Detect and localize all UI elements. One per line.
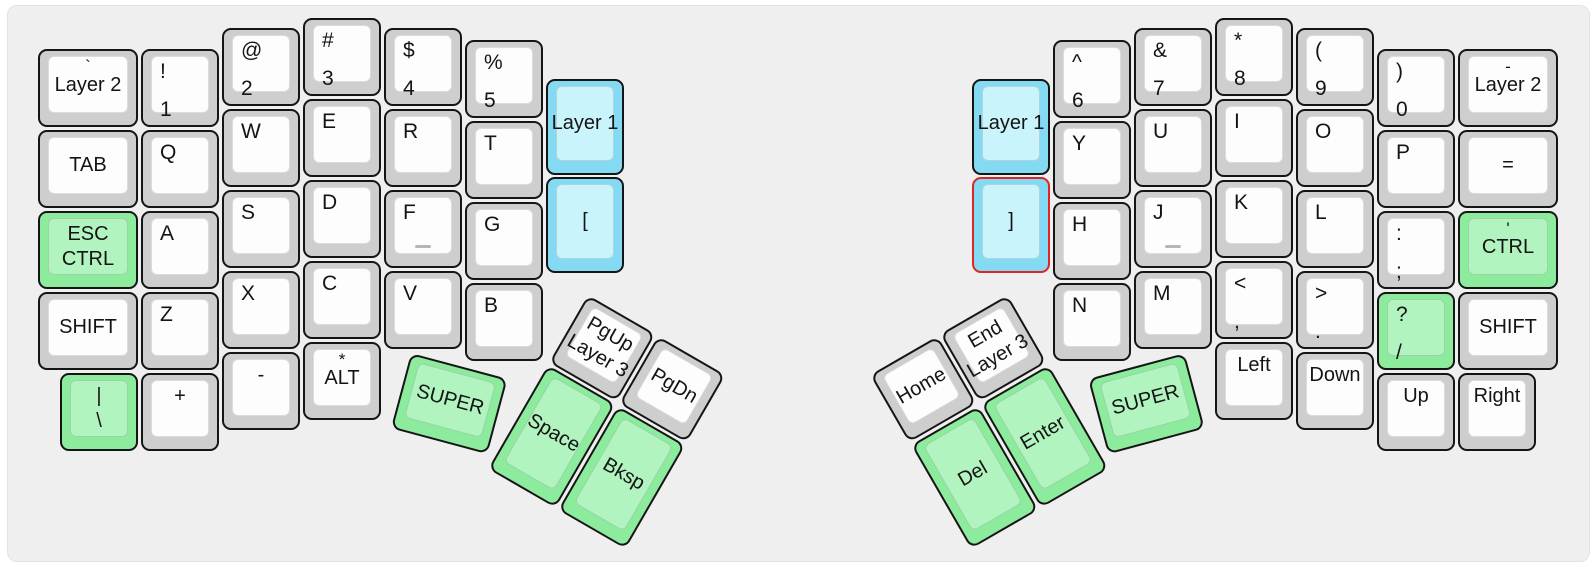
key-minus[interactable]: - bbox=[222, 352, 300, 430]
keycap-top: SUPER bbox=[1099, 362, 1191, 438]
keycap-top: Layer 1 bbox=[556, 86, 614, 161]
key-s[interactable]: S bbox=[222, 190, 300, 268]
key-labels: ESCCTRL bbox=[50, 219, 126, 274]
key-labels: )0 bbox=[1389, 57, 1443, 112]
keycap-top: G bbox=[475, 209, 533, 266]
keycap-top: @2 bbox=[232, 35, 290, 92]
key-label-line: SUPER bbox=[1109, 379, 1182, 421]
key-label-line: Home bbox=[892, 362, 951, 410]
key-label-line: * bbox=[1234, 29, 1281, 53]
key-labels: P bbox=[1389, 138, 1443, 193]
key-label-line: > bbox=[1315, 282, 1362, 306]
key-labels: *8 bbox=[1227, 26, 1281, 81]
key-labels: + bbox=[153, 381, 207, 436]
key-labels: #3 bbox=[315, 26, 369, 81]
key-m[interactable]: M bbox=[1134, 271, 1212, 349]
key-labels: A bbox=[153, 219, 207, 274]
keycap-top: S bbox=[232, 197, 290, 254]
key-label-line: T bbox=[484, 132, 531, 156]
key-labels: Home bbox=[884, 349, 958, 424]
key-at-2[interactable]: @2 bbox=[222, 28, 300, 106]
key-labels: Z bbox=[153, 300, 207, 355]
key-labels: G bbox=[477, 210, 531, 265]
keycap-top: W bbox=[232, 116, 290, 173]
key-rparen-0[interactable]: )0 bbox=[1377, 49, 1455, 127]
key-label-line: 4 bbox=[403, 77, 450, 101]
keycap-top: |\ bbox=[70, 380, 128, 437]
keycap-top: L bbox=[1306, 197, 1364, 254]
key-labels: EndLayer 3 bbox=[954, 308, 1028, 383]
key-label-line: Z bbox=[160, 303, 207, 327]
key-labels: Right bbox=[1470, 381, 1524, 436]
keycap-top: Down bbox=[1306, 359, 1364, 416]
key-label-line: ESC bbox=[67, 222, 108, 247]
key-label-line: B bbox=[484, 294, 531, 318]
key-labels: M bbox=[1146, 279, 1200, 334]
key-label-line: O bbox=[1315, 120, 1362, 144]
key-labels: = bbox=[1470, 138, 1546, 193]
key-l[interactable]: L bbox=[1296, 190, 1374, 268]
keycap-top: F bbox=[394, 197, 452, 254]
key-labels: *ALT bbox=[315, 350, 369, 405]
keycap-top: Left bbox=[1225, 349, 1283, 406]
keycap-top: I bbox=[1225, 106, 1283, 163]
key-labels: %5 bbox=[477, 48, 531, 103]
key-exclam-1[interactable]: !1 bbox=[141, 49, 219, 127]
keycap-top: Up bbox=[1387, 380, 1445, 437]
key-label-line: [ bbox=[582, 209, 588, 234]
key-w[interactable]: W bbox=[222, 109, 300, 187]
key-label-line: , bbox=[1234, 310, 1281, 334]
key-labels: Q bbox=[153, 138, 207, 193]
key-label-line: . bbox=[1315, 320, 1362, 344]
key-label-line: X bbox=[241, 282, 288, 306]
keycap-top: A bbox=[151, 218, 209, 275]
key-labels: Layer 1 bbox=[558, 87, 612, 160]
key-arrow-right[interactable]: Right bbox=[1458, 373, 1536, 451]
key-label-line: Up bbox=[1389, 384, 1443, 408]
key-j[interactable]: J bbox=[1134, 190, 1212, 268]
keycap-top: Q bbox=[151, 137, 209, 194]
key-label-line: Y bbox=[1072, 132, 1119, 156]
key-labels: SHIFT bbox=[50, 300, 126, 355]
key-dash-layer2[interactable]: -Layer 2 bbox=[1458, 49, 1558, 127]
key-labels: H bbox=[1065, 210, 1119, 265]
key-labels: >. bbox=[1308, 279, 1362, 334]
key-label-line: ! bbox=[160, 60, 207, 84]
key-labels: @2 bbox=[234, 36, 288, 91]
key-rbracket[interactable]: ] bbox=[972, 177, 1050, 273]
key-labels: O bbox=[1308, 117, 1362, 172]
key-labels: [ bbox=[558, 185, 612, 258]
homing-bar bbox=[415, 245, 431, 248]
keycap-top: (9 bbox=[1306, 35, 1364, 92]
key-label-line: C bbox=[322, 272, 369, 296]
key-label-line: 3 bbox=[322, 67, 369, 91]
key-shift-right[interactable]: SHIFT bbox=[1458, 292, 1558, 370]
key-label-line: Del bbox=[954, 456, 992, 493]
keycap-top: SUPER bbox=[404, 362, 496, 438]
key-label-line: $ bbox=[403, 39, 450, 63]
key-k[interactable]: K bbox=[1215, 180, 1293, 258]
key-label-line: 5 bbox=[484, 89, 531, 113]
key-label-line: 2 bbox=[241, 77, 288, 101]
key-labels: TAB bbox=[50, 138, 126, 193]
keycap-top: :; bbox=[1387, 218, 1445, 275]
key-label-line: 7 bbox=[1153, 77, 1200, 101]
key-label-line: Layer 2 bbox=[1475, 73, 1542, 97]
key-gt-period[interactable]: >. bbox=[1296, 271, 1374, 349]
key-labels: :; bbox=[1389, 219, 1443, 274]
key-arrow-left[interactable]: Left bbox=[1215, 342, 1293, 420]
key-label-line: W bbox=[241, 120, 288, 144]
key-labels: Down bbox=[1308, 360, 1362, 415]
key-tab[interactable]: TAB bbox=[38, 130, 138, 208]
key-label-line: ] bbox=[1008, 209, 1014, 234]
key-label-line: V bbox=[403, 282, 450, 306]
key-lt-comma[interactable]: <, bbox=[1215, 261, 1293, 339]
key-label-line: % bbox=[484, 51, 531, 75]
keycap-top: `Layer 2 bbox=[48, 56, 128, 113]
key-label-line: CTRL bbox=[1482, 235, 1534, 259]
keycap-top: Y bbox=[1063, 128, 1121, 185]
key-label-line: J bbox=[1153, 201, 1200, 225]
key-label-line: F bbox=[403, 201, 450, 225]
key-labels: SHIFT bbox=[1470, 300, 1546, 355]
key-label-line: Left bbox=[1227, 353, 1281, 377]
key-label-line: ^ bbox=[1072, 51, 1119, 75]
key-label-line: P bbox=[1396, 141, 1443, 165]
key-label-line: - bbox=[1470, 57, 1546, 76]
key-labels: W bbox=[234, 117, 288, 172]
keycap-top: V bbox=[394, 278, 452, 335]
key-colon-semicolon[interactable]: :; bbox=[1377, 211, 1455, 289]
key-label-line: Layer 1 bbox=[552, 111, 619, 136]
key-lparen-9[interactable]: (9 bbox=[1296, 28, 1374, 106]
key-plus[interactable]: + bbox=[141, 373, 219, 451]
key-esc-ctrl[interactable]: ESCCTRL bbox=[38, 211, 138, 289]
key-labels: !1 bbox=[153, 57, 207, 112]
keycap-top: M bbox=[1144, 278, 1202, 335]
keycap-top: D bbox=[313, 187, 371, 244]
key-label-line: 6 bbox=[1072, 89, 1119, 113]
keycap-top: 'CTRL bbox=[1468, 218, 1548, 275]
key-label-line: CTRL bbox=[62, 247, 114, 272]
key-label-line: G bbox=[484, 213, 531, 237]
key-labels: ?/ bbox=[1389, 300, 1443, 355]
key-arrow-down[interactable]: Down bbox=[1296, 352, 1374, 430]
key-labels: `Layer 2 bbox=[50, 57, 126, 112]
key-label-line: 1 bbox=[160, 98, 207, 122]
keycap-top: ^6 bbox=[1063, 47, 1121, 104]
key-label-line: SHIFT bbox=[59, 315, 117, 340]
keycap-top: - bbox=[232, 359, 290, 416]
key-label-line: - bbox=[234, 363, 288, 387]
keycap-top: N bbox=[1063, 290, 1121, 347]
key-x[interactable]: X bbox=[222, 271, 300, 349]
key-label-line: N bbox=[1072, 294, 1119, 318]
key-labels: U bbox=[1146, 117, 1200, 172]
key-label-line: ; bbox=[1396, 260, 1443, 284]
keycap-top: ESCCTRL bbox=[48, 218, 128, 275]
key-i[interactable]: I bbox=[1215, 99, 1293, 177]
keycap-top: #3 bbox=[313, 25, 371, 82]
key-label-line: Down bbox=[1308, 363, 1362, 387]
key-b[interactable]: B bbox=[465, 283, 543, 361]
key-label-line: ALT bbox=[324, 366, 359, 390]
keycap-top: -Layer 2 bbox=[1468, 56, 1548, 113]
keycap-top: B bbox=[475, 290, 533, 347]
key-labels: ] bbox=[984, 185, 1038, 258]
key-question-slash[interactable]: ?/ bbox=[1377, 292, 1455, 370]
keycap-top: &7 bbox=[1144, 35, 1202, 92]
key-c[interactable]: C bbox=[303, 261, 381, 339]
key-percent-5[interactable]: %5 bbox=[465, 40, 543, 118]
key-caret-6[interactable]: ^6 bbox=[1053, 40, 1131, 118]
keycap-top: %5 bbox=[475, 47, 533, 104]
key-label-line: SUPER bbox=[414, 379, 487, 421]
key-g[interactable]: G bbox=[465, 202, 543, 280]
keycap-top: SHIFT bbox=[1468, 299, 1548, 356]
keycap-top: Layer 1 bbox=[982, 86, 1040, 161]
key-label-line: < bbox=[1234, 272, 1281, 296]
key-label-line: * bbox=[315, 350, 369, 369]
keycap-top: J bbox=[1144, 197, 1202, 254]
key-equals[interactable]: = bbox=[1458, 130, 1558, 208]
key-labels: PgDn bbox=[637, 349, 711, 424]
keycap-top: [ bbox=[556, 184, 614, 259]
keycap-top: C bbox=[313, 268, 371, 325]
key-labels: L bbox=[1308, 198, 1362, 253]
key-label-line: Space bbox=[523, 408, 585, 458]
key-layer1-right[interactable]: Layer 1 bbox=[972, 79, 1050, 175]
key-label-line: U bbox=[1153, 120, 1200, 144]
keycap-top: ?/ bbox=[1387, 299, 1445, 356]
key-label-line: R bbox=[403, 120, 450, 144]
key-arrow-up[interactable]: Up bbox=[1377, 373, 1455, 451]
key-labels: T bbox=[477, 129, 531, 184]
key-z[interactable]: Z bbox=[141, 292, 219, 370]
key-labels: PgUpLayer 3 bbox=[567, 308, 641, 383]
key-label-line: ' bbox=[1470, 219, 1546, 238]
key-label-line: SHIFT bbox=[1479, 315, 1537, 340]
key-label-line: 9 bbox=[1315, 77, 1362, 101]
key-labels: - bbox=[234, 360, 288, 415]
key-q[interactable]: Q bbox=[141, 130, 219, 208]
keycap-top: O bbox=[1306, 116, 1364, 173]
key-labels: $4 bbox=[396, 36, 450, 91]
key-labels: ^6 bbox=[1065, 48, 1119, 103]
key-labels: C bbox=[315, 269, 369, 324]
key-label-line: I bbox=[1234, 110, 1281, 134]
key-labels: I bbox=[1227, 107, 1281, 162]
key-labels: D bbox=[315, 188, 369, 243]
keycap-top: P bbox=[1387, 137, 1445, 194]
key-amp-7[interactable]: &7 bbox=[1134, 28, 1212, 106]
key-n[interactable]: N bbox=[1053, 283, 1131, 361]
key-quote-ctrl[interactable]: 'CTRL bbox=[1458, 211, 1558, 289]
key-label-line: K bbox=[1234, 191, 1281, 215]
keycap-top: TAB bbox=[48, 137, 128, 194]
key-t[interactable]: T bbox=[465, 121, 543, 199]
key-p[interactable]: P bbox=[1377, 130, 1455, 208]
keycap-top: + bbox=[151, 380, 209, 437]
key-label-line: E bbox=[322, 110, 369, 134]
key-label-line: ) bbox=[1396, 60, 1443, 84]
key-v[interactable]: V bbox=[384, 271, 462, 349]
key-labels: (9 bbox=[1308, 36, 1362, 91]
keycap-top: Right bbox=[1468, 380, 1526, 437]
key-label-line: A bbox=[160, 222, 207, 246]
key-label-line: M bbox=[1153, 282, 1200, 306]
key-label-line: H bbox=[1072, 213, 1119, 237]
key-e[interactable]: E bbox=[303, 99, 381, 177]
key-labels: &7 bbox=[1146, 36, 1200, 91]
key-labels: Left bbox=[1227, 350, 1281, 405]
key-label-line: | bbox=[96, 384, 101, 409]
keycap-top: !1 bbox=[151, 56, 209, 113]
key-labels: X bbox=[234, 279, 288, 334]
keycap-top: Z bbox=[151, 299, 209, 356]
key-labels: Y bbox=[1065, 129, 1119, 184]
key-label-line: : bbox=[1396, 222, 1443, 246]
key-label-line: = bbox=[1502, 153, 1514, 178]
key-star-8[interactable]: *8 bbox=[1215, 18, 1293, 96]
key-lbracket[interactable]: [ bbox=[546, 177, 624, 273]
key-labels: K bbox=[1227, 188, 1281, 243]
key-labels: |\ bbox=[72, 381, 126, 436]
key-label-line: Bksp bbox=[598, 452, 649, 496]
keycap-top: >. bbox=[1306, 278, 1364, 335]
key-label-line: Q bbox=[160, 141, 207, 165]
keycap-top: H bbox=[1063, 209, 1121, 266]
keycap-top: <, bbox=[1225, 268, 1283, 325]
key-labels: V bbox=[396, 279, 450, 334]
key-label-line: & bbox=[1153, 39, 1200, 63]
key-label-line: Enter bbox=[1016, 411, 1070, 457]
keycap-top: ] bbox=[982, 184, 1040, 259]
key-label-line: L bbox=[1315, 201, 1362, 225]
key-label-line: \ bbox=[96, 409, 102, 434]
keycap-top: X bbox=[232, 278, 290, 335]
key-label-line: Layer 1 bbox=[978, 111, 1045, 136]
key-pipe-backslash[interactable]: |\ bbox=[60, 373, 138, 451]
keycap-top: K bbox=[1225, 187, 1283, 244]
key-label-line: ( bbox=[1315, 39, 1362, 63]
key-label-line: 0 bbox=[1396, 98, 1443, 122]
key-label-line: S bbox=[241, 201, 288, 225]
key-h[interactable]: H bbox=[1053, 202, 1131, 280]
homing-bar bbox=[1165, 245, 1181, 248]
key-label-line: @ bbox=[241, 39, 288, 63]
key-labels: S bbox=[234, 198, 288, 253]
key-label-line: ` bbox=[50, 57, 126, 76]
key-labels: N bbox=[1065, 291, 1119, 346]
key-labels: SUPER bbox=[406, 364, 494, 437]
key-o[interactable]: O bbox=[1296, 109, 1374, 187]
keycap-top: E bbox=[313, 106, 371, 163]
key-label-line: Right bbox=[1470, 384, 1524, 408]
key-label-line: + bbox=[153, 384, 207, 408]
key-label-line: Layer 2 bbox=[55, 73, 122, 97]
key-labels: SUPER bbox=[1102, 364, 1190, 437]
key-label-line: 8 bbox=[1234, 67, 1281, 91]
keycap-top: *ALT bbox=[313, 349, 371, 406]
key-dollar-4[interactable]: $4 bbox=[384, 28, 462, 106]
key-labels: <, bbox=[1227, 269, 1281, 324]
key-label-line: D bbox=[322, 191, 369, 215]
key-label-line: PgDn bbox=[646, 363, 702, 410]
key-label-line: / bbox=[1396, 341, 1443, 365]
key-labels: R bbox=[396, 117, 450, 172]
key-star-alt[interactable]: *ALT bbox=[303, 342, 381, 420]
key-labels: 'CTRL bbox=[1470, 219, 1546, 274]
key-grave-layer2[interactable]: `Layer 2 bbox=[38, 49, 138, 127]
key-labels: Layer 1 bbox=[984, 87, 1038, 160]
key-a[interactable]: A bbox=[141, 211, 219, 289]
key-label-line: # bbox=[322, 29, 369, 53]
key-r[interactable]: R bbox=[384, 109, 462, 187]
keycap-top: *8 bbox=[1225, 25, 1283, 82]
key-labels: E bbox=[315, 107, 369, 162]
key-d[interactable]: D bbox=[303, 180, 381, 258]
key-labels: B bbox=[477, 291, 531, 346]
key-shift-left[interactable]: SHIFT bbox=[38, 292, 138, 370]
key-labels: Up bbox=[1389, 381, 1443, 436]
key-labels: -Layer 2 bbox=[1470, 57, 1546, 112]
keycap-top: = bbox=[1468, 137, 1548, 194]
key-y[interactable]: Y bbox=[1053, 121, 1131, 199]
key-u[interactable]: U bbox=[1134, 109, 1212, 187]
keycap-top: SHIFT bbox=[48, 299, 128, 356]
key-hash-3[interactable]: #3 bbox=[303, 18, 381, 96]
keycap-top: $4 bbox=[394, 35, 452, 92]
key-label-line: ? bbox=[1396, 303, 1443, 327]
key-f[interactable]: F bbox=[384, 190, 462, 268]
keycap-top: )0 bbox=[1387, 56, 1445, 113]
keycap-top: R bbox=[394, 116, 452, 173]
key-label-line: TAB bbox=[69, 153, 106, 178]
keycap-top: U bbox=[1144, 116, 1202, 173]
key-layer1-left[interactable]: Layer 1 bbox=[546, 79, 624, 175]
keycap-top: T bbox=[475, 128, 533, 185]
